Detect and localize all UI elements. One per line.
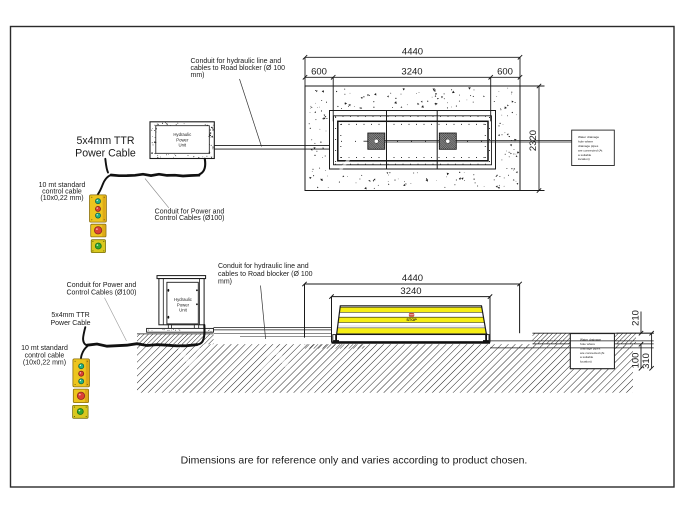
svg-text:a suitable: a suitable bbox=[578, 153, 592, 157]
svg-text:210: 210 bbox=[630, 310, 641, 326]
svg-text:Unit: Unit bbox=[179, 308, 187, 313]
svg-text:3240: 3240 bbox=[401, 66, 422, 77]
svg-text:5x4mm TTR: 5x4mm TTR bbox=[76, 135, 134, 147]
svg-text:(10x0,22 mm): (10x0,22 mm) bbox=[40, 195, 83, 202]
svg-text:drainage pipes: drainage pipes bbox=[578, 144, 599, 148]
svg-text:mm): mm) bbox=[218, 278, 232, 285]
svg-text:Control Cables (Ø100): Control Cables (Ø100) bbox=[154, 215, 224, 222]
svg-text:cables to Road blocker (Ø 100: cables to Road blocker (Ø 100 bbox=[191, 65, 286, 72]
svg-text:Unit: Unit bbox=[178, 143, 186, 148]
svg-text:location): location) bbox=[578, 157, 590, 161]
svg-text:5x4mm TTR: 5x4mm TTR bbox=[51, 312, 89, 319]
svg-text:hole where: hole where bbox=[580, 342, 595, 346]
svg-text:location): location) bbox=[580, 360, 592, 364]
svg-text:Control Cables (Ø100): Control Cables (Ø100) bbox=[66, 289, 136, 296]
svg-text:STOP: STOP bbox=[406, 317, 417, 322]
svg-text:310: 310 bbox=[641, 353, 652, 369]
svg-text:Dimensions are for reference o: Dimensions are for reference only and va… bbox=[181, 454, 528, 466]
svg-text:Water drainage: Water drainage bbox=[580, 338, 601, 342]
svg-text:3240: 3240 bbox=[400, 286, 421, 297]
svg-text:Conduit for hydraulic line and: Conduit for hydraulic line and bbox=[191, 58, 282, 65]
svg-text:are connected (At: are connected (At bbox=[580, 351, 605, 355]
svg-text:Conduit for hydraulic line and: Conduit for hydraulic line and bbox=[218, 263, 309, 270]
svg-text:mm): mm) bbox=[191, 72, 205, 79]
svg-text:hole where: hole where bbox=[578, 140, 593, 144]
svg-text:4440: 4440 bbox=[402, 46, 423, 57]
svg-text:10 mt standard: 10 mt standard bbox=[21, 345, 68, 352]
svg-text:2320: 2320 bbox=[528, 130, 539, 151]
svg-text:Power Cable: Power Cable bbox=[75, 147, 136, 159]
svg-text:Power Cable: Power Cable bbox=[50, 320, 90, 327]
svg-text:(10x0,22 mm): (10x0,22 mm) bbox=[23, 359, 66, 366]
svg-text:a suitable: a suitable bbox=[580, 355, 594, 359]
svg-text:600: 600 bbox=[311, 66, 327, 77]
svg-text:are connected (At: are connected (At bbox=[578, 148, 603, 152]
svg-text:4440: 4440 bbox=[402, 273, 423, 284]
svg-text:cables to Road blocker (Ø 100: cables to Road blocker (Ø 100 bbox=[218, 271, 313, 278]
svg-text:Conduit for Power and: Conduit for Power and bbox=[67, 282, 137, 289]
svg-text:600: 600 bbox=[497, 66, 513, 77]
svg-text:100: 100 bbox=[630, 353, 641, 369]
svg-text:drainage pipes: drainage pipes bbox=[580, 346, 601, 350]
svg-text:Water drainage: Water drainage bbox=[578, 135, 599, 139]
